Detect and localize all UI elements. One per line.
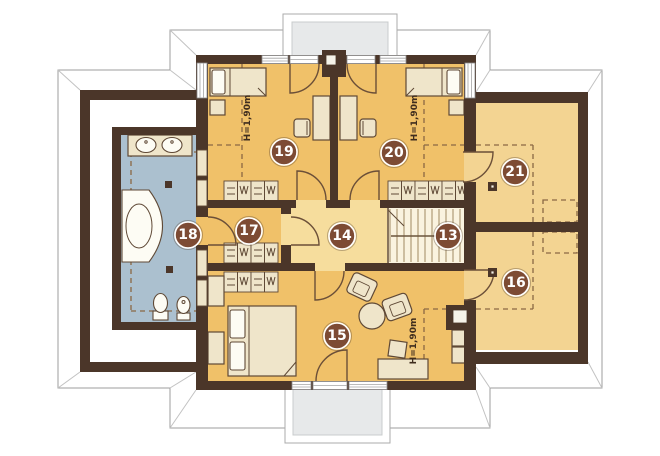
badge-number: 19	[274, 144, 293, 160]
double-bed-icon	[228, 306, 296, 376]
door-gap	[281, 214, 291, 245]
floor-plan: 13 14 15 16 17 18 19 20 21 H=1,90m H=1,9…	[0, 0, 660, 456]
nightstand-icon	[210, 100, 225, 115]
wardrobe-icon	[224, 243, 251, 263]
floor-drain	[165, 181, 172, 188]
bathtub-icon	[122, 190, 163, 262]
room-badge-13: 13	[434, 222, 463, 251]
wall-segment	[112, 127, 121, 330]
cabinet-icon	[208, 276, 224, 306]
round-table-icon	[359, 303, 385, 329]
window	[465, 63, 475, 98]
height-label: H=1,90m	[410, 95, 420, 142]
chair-icon	[294, 119, 310, 137]
window	[380, 56, 406, 64]
wall-segment	[330, 64, 338, 200]
room-badge-21: 21	[501, 158, 530, 187]
room-badge-17: 17	[235, 217, 264, 246]
badge-number: 15	[327, 328, 346, 344]
balcony-floor	[293, 383, 382, 435]
shelf-icon	[197, 250, 207, 276]
badge-number: 13	[438, 228, 457, 244]
room-badge-18: 18	[174, 221, 203, 250]
wardrobe-icon	[415, 181, 442, 201]
badge-number: 16	[506, 275, 525, 291]
room-badge-19: 19	[270, 138, 299, 167]
floor-plan-canvas: 13 14 15 16 17 18 19 20 21 H=1,90m H=1,9…	[0, 0, 660, 456]
room-badge-16: 16	[502, 269, 531, 298]
badge-number: 17	[239, 223, 258, 239]
door-gap	[464, 270, 476, 300]
wall-segment	[80, 90, 90, 372]
balcony-bottom	[285, 383, 390, 443]
window	[197, 63, 207, 98]
door-threshold	[313, 382, 347, 390]
wall-segment	[578, 92, 588, 364]
badge-number: 21	[505, 164, 524, 180]
window	[349, 382, 387, 390]
wall-segment	[476, 222, 578, 232]
wall-segment	[80, 90, 196, 100]
door-gap	[350, 200, 380, 208]
door-gap	[464, 152, 476, 182]
window	[262, 56, 288, 64]
desk-icon	[378, 359, 428, 379]
shelf-icon	[197, 180, 207, 206]
wardrobe-icon	[224, 272, 251, 292]
window	[292, 382, 311, 390]
badge-number: 14	[332, 228, 352, 244]
wall-segment	[208, 200, 464, 208]
desk-icon	[313, 96, 330, 140]
wardrobe-icon	[251, 243, 278, 263]
door-gap	[315, 263, 345, 271]
vent-shaft	[488, 268, 497, 277]
chair-icon	[360, 119, 376, 137]
wardrobe-icon	[251, 272, 278, 292]
badge-number: 18	[178, 227, 197, 243]
wall-segment	[80, 362, 196, 372]
vent-shaft	[488, 182, 497, 191]
toilet-icon	[153, 294, 168, 321]
room-badge-20: 20	[380, 139, 409, 168]
door-gap	[296, 200, 326, 208]
wall-segment	[476, 352, 588, 364]
height-label: H=1,90m	[409, 318, 419, 365]
floor-drain	[166, 266, 173, 273]
nightstand-icon	[449, 100, 464, 115]
room-badge-15: 15	[323, 322, 352, 351]
bed-icon	[406, 68, 462, 96]
wall-segment	[464, 55, 476, 390]
cabinet-icon	[208, 332, 224, 364]
wall-segment	[112, 127, 196, 135]
badge-number: 20	[384, 145, 404, 161]
bed-icon	[210, 68, 266, 96]
wall-segment	[476, 92, 588, 103]
chimney	[446, 305, 476, 330]
vanity-sinks-icon	[128, 135, 192, 156]
room-badge-14: 14	[328, 222, 357, 251]
door-threshold	[347, 56, 375, 64]
door-threshold	[290, 56, 318, 64]
shelf-icon	[197, 280, 207, 306]
stool-icon	[388, 340, 407, 358]
wardrobe-icon	[388, 181, 415, 201]
wardrobe-icon	[224, 181, 251, 201]
bidet-icon	[177, 297, 190, 321]
wall-segment	[112, 322, 196, 330]
height-label: H=1,90m	[243, 95, 253, 142]
wardrobe-icon	[251, 181, 278, 201]
chimney	[322, 50, 346, 77]
desk-icon	[340, 96, 357, 140]
shelf-icon	[197, 150, 207, 176]
